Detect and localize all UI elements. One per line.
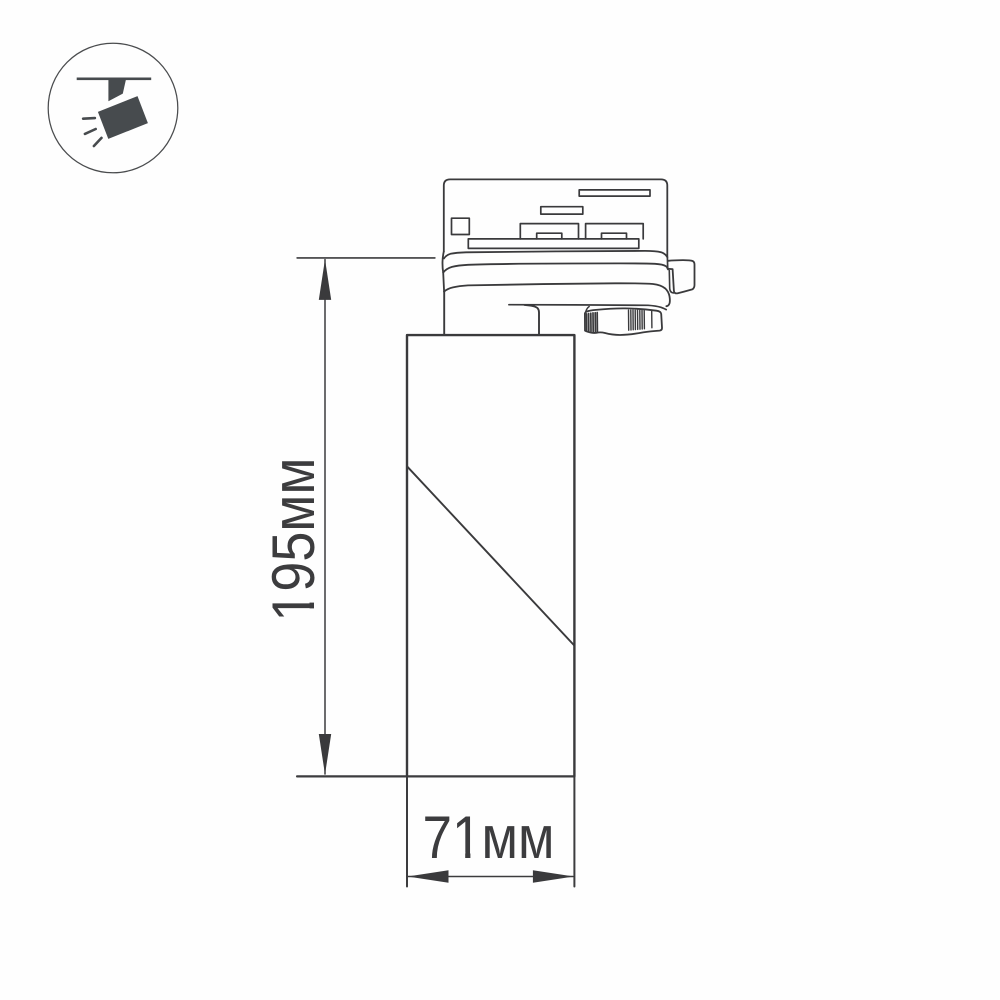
svg-text:71мм: 71мм bbox=[423, 804, 555, 871]
svg-text:195мм: 195мм bbox=[260, 458, 327, 622]
